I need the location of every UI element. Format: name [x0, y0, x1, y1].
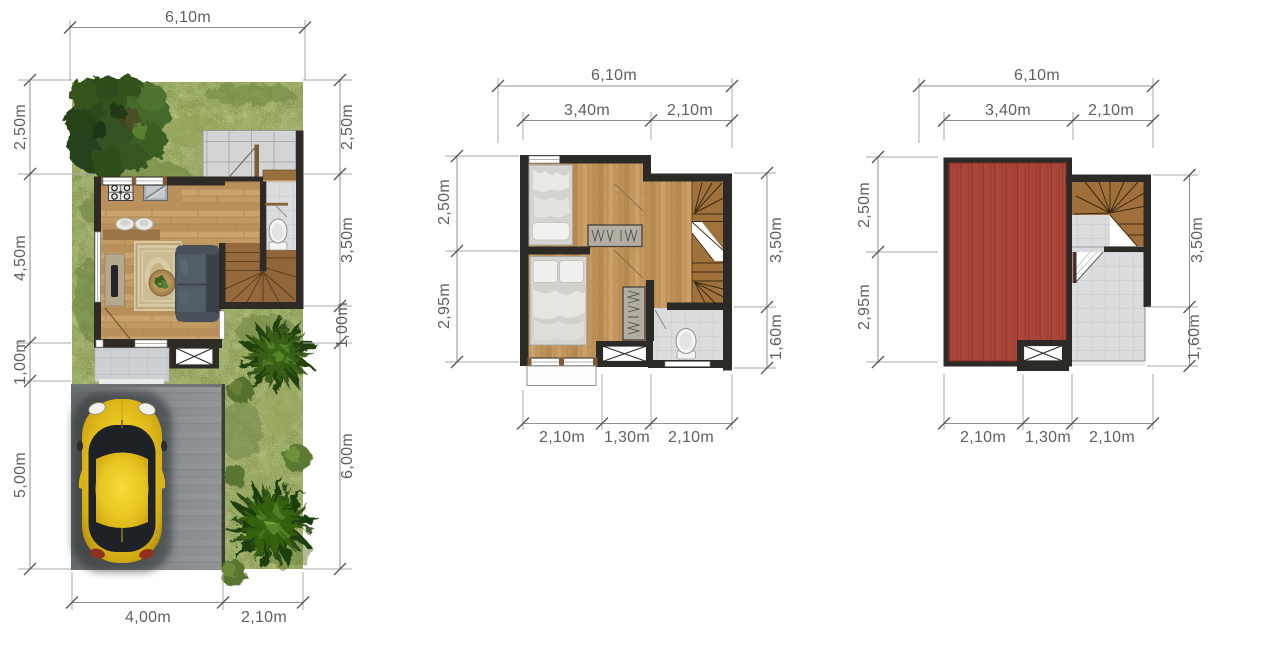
svg-text:3,50m: 3,50m [339, 217, 356, 263]
svg-text:3,50m: 3,50m [1189, 217, 1206, 263]
svg-text:2,50m: 2,50m [339, 104, 356, 150]
svg-text:6,10m: 6,10m [165, 9, 211, 26]
svg-text:2,10m: 2,10m [960, 429, 1006, 446]
svg-text:4,50m: 4,50m [12, 235, 29, 281]
svg-text:3,40m: 3,40m [564, 102, 610, 119]
svg-text:6,10m: 6,10m [591, 67, 637, 84]
svg-text:2,10m: 2,10m [241, 609, 287, 626]
svg-text:2,50m: 2,50m [856, 182, 873, 228]
svg-text:2,10m: 2,10m [668, 429, 714, 446]
svg-text:2,10m: 2,10m [539, 429, 585, 446]
svg-text:1,00m: 1,00m [12, 339, 29, 385]
svg-text:2,95m: 2,95m [436, 283, 453, 329]
svg-text:1,30m: 1,30m [1025, 429, 1071, 446]
svg-text:1,60m: 1,60m [768, 314, 785, 360]
svg-text:2,50m: 2,50m [12, 104, 29, 150]
svg-text:1,00m: 1,00m [334, 302, 351, 348]
svg-text:5,00m: 5,00m [12, 452, 29, 498]
svg-text:2,50m: 2,50m [436, 179, 453, 225]
svg-text:1,30m: 1,30m [604, 429, 650, 446]
svg-text:3,50m: 3,50m [768, 217, 785, 263]
svg-text:6,10m: 6,10m [1014, 67, 1060, 84]
svg-text:2,95m: 2,95m [856, 284, 873, 330]
svg-text:2,10m: 2,10m [1088, 102, 1134, 119]
svg-text:2,10m: 2,10m [667, 102, 713, 119]
svg-text:6,00m: 6,00m [339, 433, 356, 479]
svg-text:1,60m: 1,60m [1186, 314, 1203, 360]
svg-text:3,40m: 3,40m [985, 102, 1031, 119]
svg-text:2,10m: 2,10m [1089, 429, 1135, 446]
svg-text:4,00m: 4,00m [125, 609, 171, 626]
